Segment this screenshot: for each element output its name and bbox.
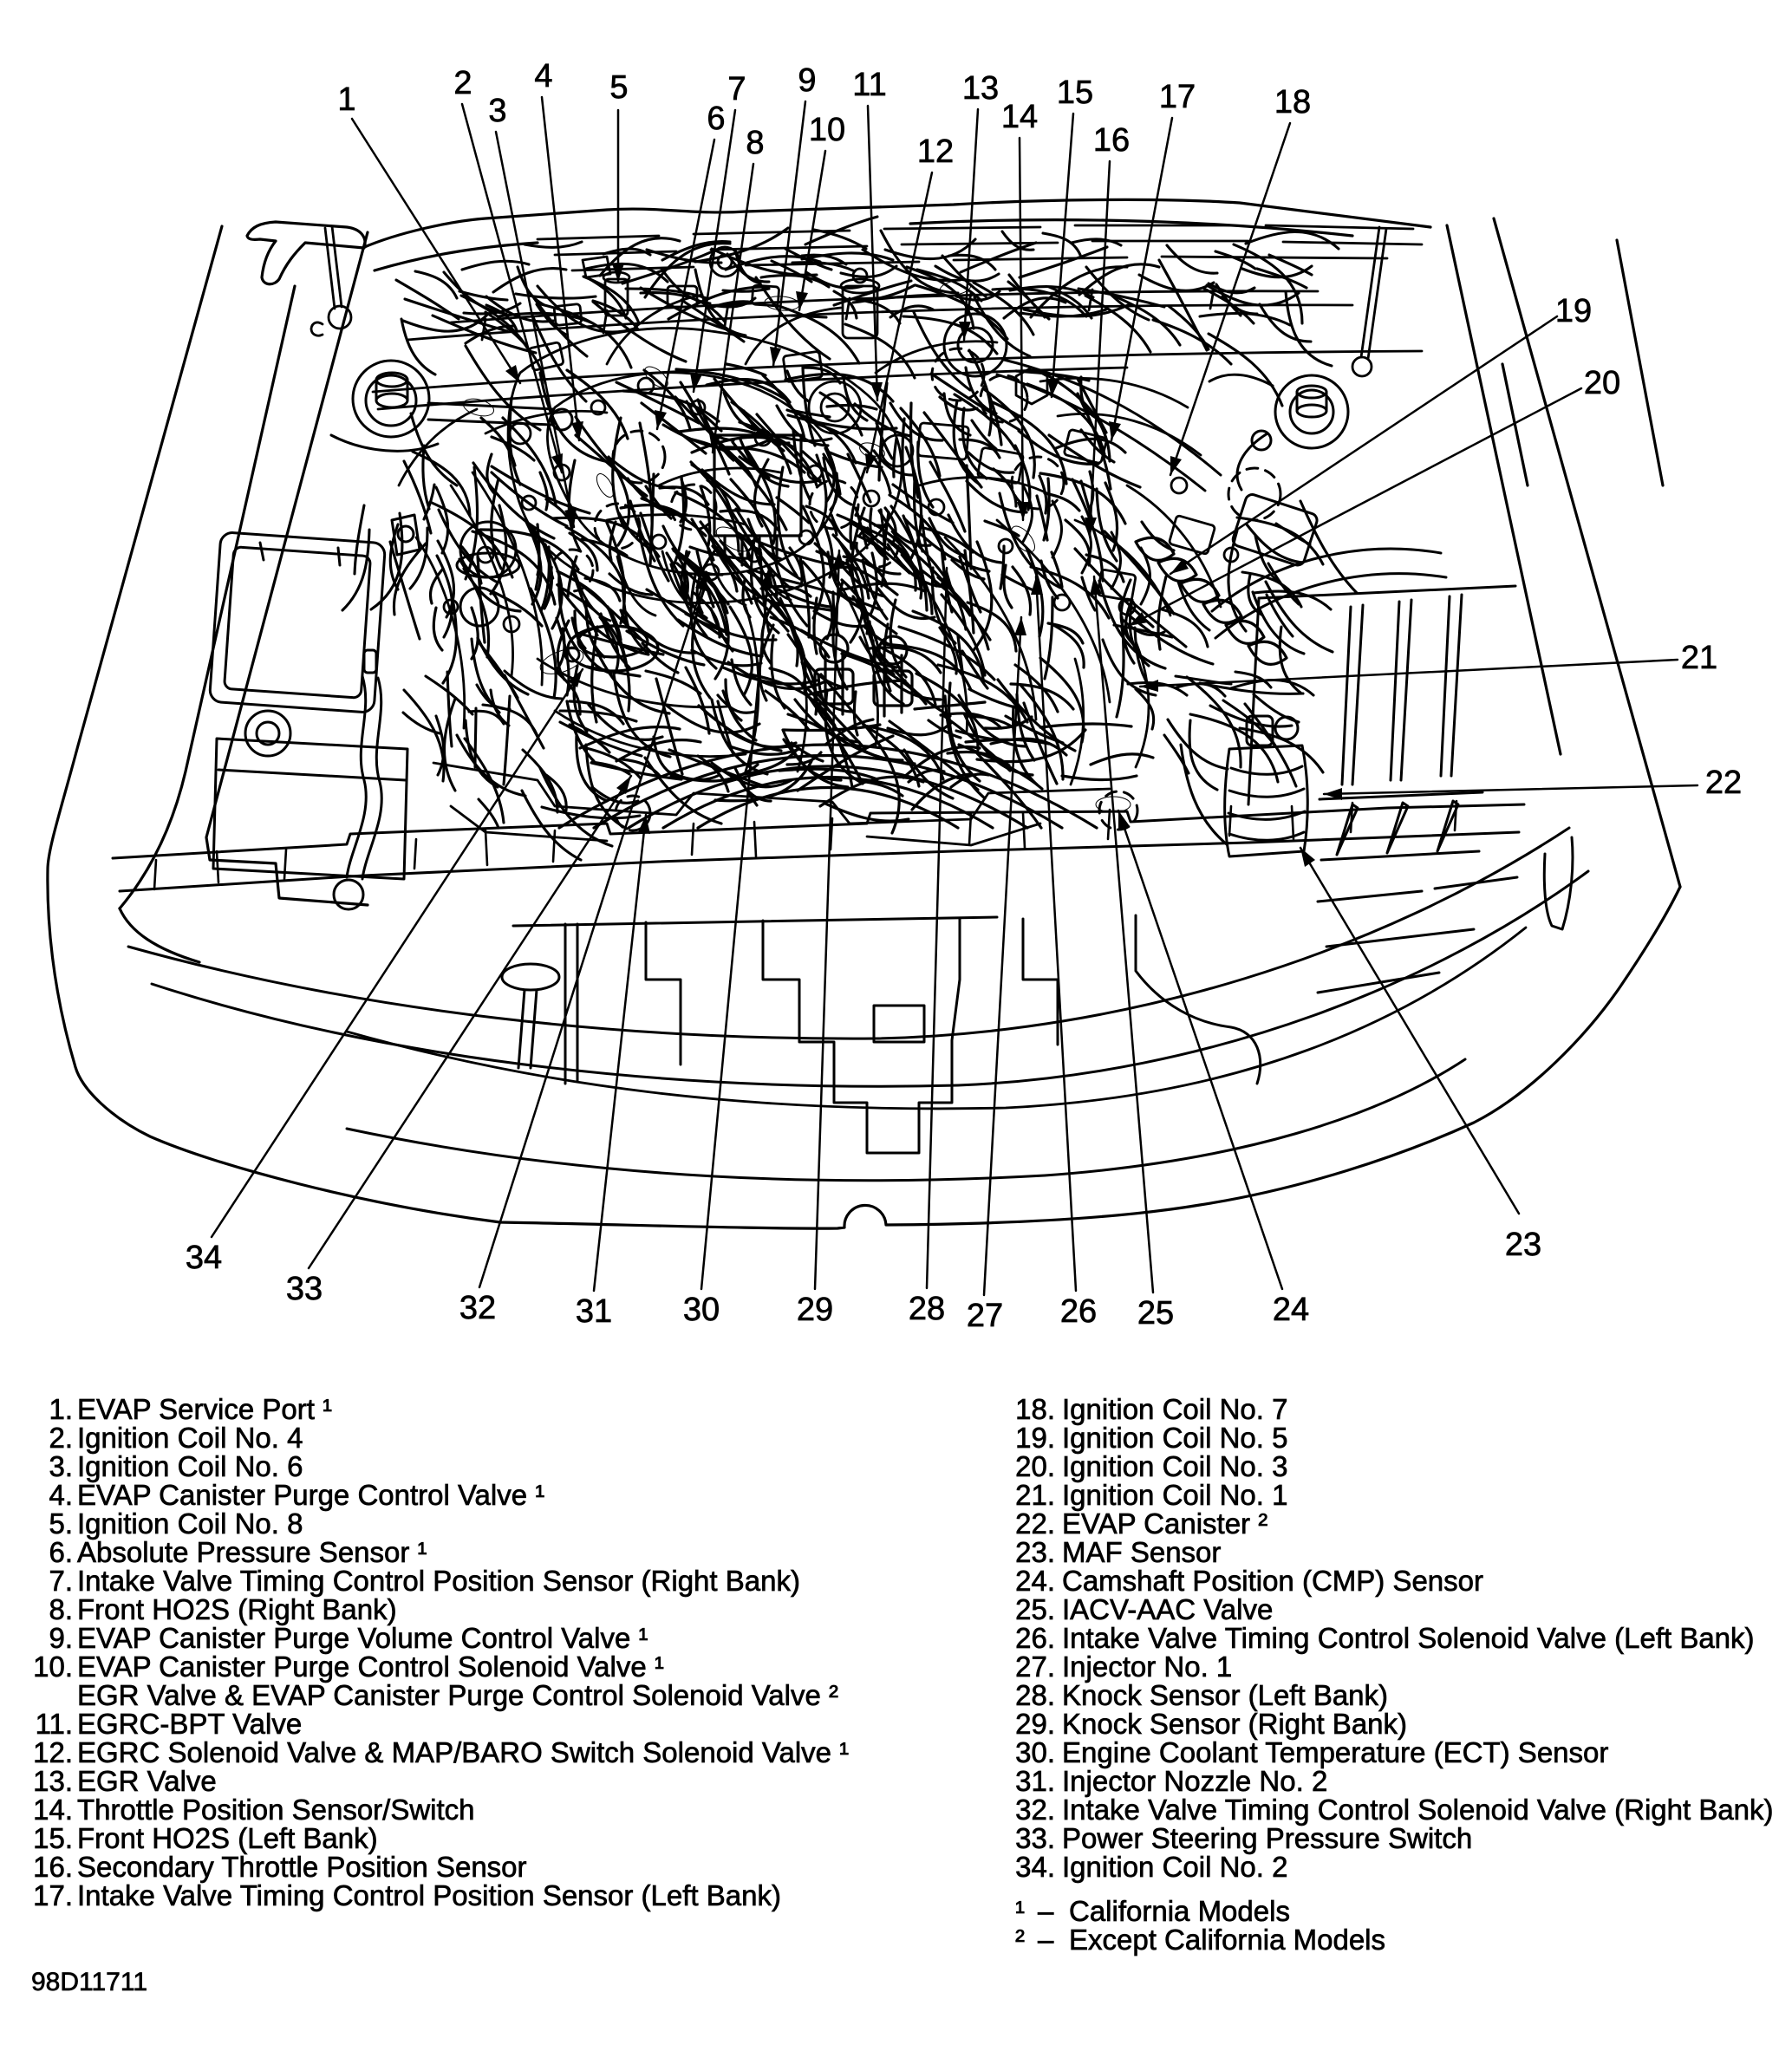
svg-text:Intake Valve Timing Control So: Intake Valve Timing Control Solenoid Val… — [1062, 1794, 1774, 1826]
svg-text:33.: 33. — [1015, 1822, 1055, 1854]
svg-text:IACV-AAC Valve: IACV-AAC Valve — [1062, 1593, 1273, 1625]
svg-text:3: 3 — [488, 93, 506, 129]
svg-text:EGR Valve & EVAP Canister Purg: EGR Valve & EVAP Canister Purge Control … — [77, 1679, 838, 1711]
svg-text:EGR Valve: EGR Valve — [77, 1765, 217, 1797]
svg-text:22.: 22. — [1015, 1507, 1055, 1540]
svg-text:9.: 9. — [49, 1622, 73, 1654]
svg-text:34.: 34. — [1015, 1851, 1055, 1883]
svg-text:26: 26 — [1060, 1293, 1097, 1330]
svg-text:28.: 28. — [1015, 1679, 1055, 1711]
svg-text:33: 33 — [286, 1271, 323, 1307]
svg-text:12.: 12. — [33, 1736, 73, 1768]
svg-text:31: 31 — [576, 1293, 612, 1330]
svg-text:EVAP Canister ²: EVAP Canister ² — [1062, 1507, 1267, 1540]
svg-text:13: 13 — [962, 70, 999, 107]
svg-text:Secondary Throttle Position Se: Secondary Throttle Position Sensor — [77, 1851, 527, 1883]
svg-text:11: 11 — [852, 67, 886, 103]
svg-text:27: 27 — [967, 1298, 1003, 1334]
svg-text:Ignition Coil No. 6: Ignition Coil No. 6 — [77, 1450, 303, 1482]
svg-text:10: 10 — [809, 112, 845, 148]
svg-text:16: 16 — [1093, 122, 1130, 159]
svg-text:Engine Coolant Temperature (EC: Engine Coolant Temperature (ECT) Sensor — [1062, 1736, 1608, 1768]
svg-text:Except California Models: Except California Models — [1069, 1924, 1385, 1956]
svg-text:21.: 21. — [1015, 1479, 1055, 1511]
svg-text:Injector No. 1: Injector No. 1 — [1062, 1651, 1232, 1683]
svg-text:4: 4 — [534, 58, 552, 94]
svg-text:²: ² — [1015, 1924, 1025, 1956]
svg-text:17.: 17. — [33, 1879, 73, 1911]
svg-text:13.: 13. — [33, 1765, 73, 1797]
svg-text:Knock Sensor (Left Bank): Knock Sensor (Left Bank) — [1062, 1679, 1388, 1711]
svg-text:5.: 5. — [49, 1507, 73, 1540]
svg-text:7: 7 — [727, 71, 746, 107]
svg-text:California Models: California Models — [1069, 1895, 1290, 1927]
svg-text:Throttle Position Sensor/Switc: Throttle Position Sensor/Switch — [77, 1794, 475, 1826]
svg-text:Absolute Pressure Sensor ¹: Absolute Pressure Sensor ¹ — [77, 1536, 427, 1568]
svg-text:8: 8 — [746, 125, 764, 161]
svg-text:EVAP Service Port ¹: EVAP Service Port ¹ — [77, 1393, 332, 1425]
svg-text:Ignition Coil No. 2: Ignition Coil No. 2 — [1062, 1851, 1287, 1883]
svg-text:3.: 3. — [49, 1450, 73, 1482]
svg-text:Ignition Coil No. 7: Ignition Coil No. 7 — [1062, 1393, 1287, 1425]
svg-text:4.: 4. — [49, 1479, 73, 1511]
svg-text:6: 6 — [707, 101, 725, 137]
svg-text:MAF Sensor: MAF Sensor — [1062, 1536, 1221, 1568]
svg-text:26.: 26. — [1015, 1622, 1055, 1654]
svg-text:12: 12 — [917, 133, 954, 170]
svg-text:21: 21 — [1681, 640, 1717, 676]
svg-text:11.: 11. — [36, 1708, 73, 1740]
svg-text:Front HO2S (Right Bank): Front HO2S (Right Bank) — [77, 1593, 397, 1625]
svg-text:Ignition Coil No. 3: Ignition Coil No. 3 — [1062, 1450, 1287, 1482]
svg-text:–: – — [1038, 1895, 1054, 1927]
svg-text:32: 32 — [459, 1290, 496, 1326]
svg-text:24: 24 — [1273, 1292, 1309, 1328]
svg-text:9: 9 — [798, 62, 816, 99]
svg-text:1.: 1. — [49, 1393, 73, 1425]
svg-text:15.: 15. — [33, 1822, 73, 1854]
svg-text:Front HO2S (Left Bank): Front HO2S (Left Bank) — [77, 1822, 378, 1854]
svg-text:30.: 30. — [1015, 1736, 1055, 1768]
svg-text:6.: 6. — [49, 1536, 73, 1568]
svg-text:19.: 19. — [1015, 1422, 1055, 1454]
svg-text:23: 23 — [1505, 1227, 1541, 1263]
svg-text:2: 2 — [453, 65, 472, 101]
svg-text:Camshaft Position (CMP) Sensor: Camshaft Position (CMP) Sensor — [1062, 1565, 1483, 1597]
svg-text:17: 17 — [1159, 79, 1196, 115]
svg-text:18: 18 — [1274, 84, 1311, 120]
svg-text:14: 14 — [1001, 99, 1038, 135]
svg-text:–: – — [1038, 1924, 1054, 1956]
svg-text:98D11711: 98D11711 — [31, 1968, 147, 1996]
svg-text:24.: 24. — [1015, 1565, 1055, 1597]
svg-text:Intake Valve Timing Control Po: Intake Valve Timing Control Position Sen… — [77, 1565, 800, 1597]
svg-text:25: 25 — [1137, 1295, 1174, 1332]
svg-text:23.: 23. — [1015, 1536, 1055, 1568]
svg-text:5: 5 — [609, 69, 628, 106]
svg-text:30: 30 — [683, 1292, 720, 1328]
svg-text:7.: 7. — [49, 1565, 73, 1597]
svg-text:31.: 31. — [1015, 1765, 1055, 1797]
svg-text:EVAP Canister Purge Control So: EVAP Canister Purge Control Solenoid Val… — [77, 1651, 664, 1683]
svg-text:29: 29 — [797, 1292, 833, 1328]
svg-text:Ignition Coil No. 1: Ignition Coil No. 1 — [1062, 1479, 1287, 1511]
svg-text:20: 20 — [1584, 365, 1620, 401]
svg-text:1: 1 — [337, 81, 355, 118]
svg-text:Power Steering Pressure Switch: Power Steering Pressure Switch — [1062, 1822, 1472, 1854]
svg-text:Intake Valve Timing Control So: Intake Valve Timing Control Solenoid Val… — [1062, 1622, 1755, 1654]
svg-text:8.: 8. — [49, 1593, 73, 1625]
svg-text:27.: 27. — [1015, 1651, 1055, 1683]
svg-text:15: 15 — [1057, 75, 1093, 111]
svg-text:EVAP Canister Purge Control Va: EVAP Canister Purge Control Valve ¹ — [77, 1479, 544, 1511]
svg-text:29.: 29. — [1015, 1708, 1055, 1740]
svg-text:2.: 2. — [49, 1422, 73, 1454]
svg-text:25.: 25. — [1015, 1593, 1055, 1625]
svg-text:32.: 32. — [1015, 1794, 1055, 1826]
svg-text:Injector Nozzle No. 2: Injector Nozzle No. 2 — [1062, 1765, 1327, 1797]
svg-text:Intake Valve Timing Control Po: Intake Valve Timing Control Position Sen… — [77, 1879, 781, 1911]
svg-text:Ignition Coil No. 8: Ignition Coil No. 8 — [77, 1507, 303, 1540]
svg-text:28: 28 — [909, 1291, 945, 1327]
svg-text:Ignition Coil No. 4: Ignition Coil No. 4 — [77, 1422, 303, 1454]
svg-text:EGRC Solenoid Valve & MAP/BARO: EGRC Solenoid Valve & MAP/BARO Switch So… — [77, 1736, 849, 1768]
svg-text:¹: ¹ — [1015, 1895, 1025, 1927]
svg-text:Knock Sensor (Right Bank): Knock Sensor (Right Bank) — [1062, 1708, 1407, 1740]
svg-text:22: 22 — [1705, 765, 1742, 801]
svg-text:19: 19 — [1555, 293, 1592, 329]
svg-text:16.: 16. — [33, 1851, 73, 1883]
svg-text:18.: 18. — [1015, 1393, 1055, 1425]
svg-text:10.: 10. — [33, 1651, 73, 1683]
svg-text:EGRC-BPT Valve: EGRC-BPT Valve — [77, 1708, 302, 1740]
svg-text:20.: 20. — [1015, 1450, 1055, 1482]
svg-text:EVAP Canister Purge Volume Con: EVAP Canister Purge Volume Control Valve… — [77, 1622, 648, 1654]
svg-text:14.: 14. — [33, 1794, 73, 1826]
svg-text:34: 34 — [186, 1240, 222, 1276]
svg-text:Ignition Coil No. 5: Ignition Coil No. 5 — [1062, 1422, 1287, 1454]
